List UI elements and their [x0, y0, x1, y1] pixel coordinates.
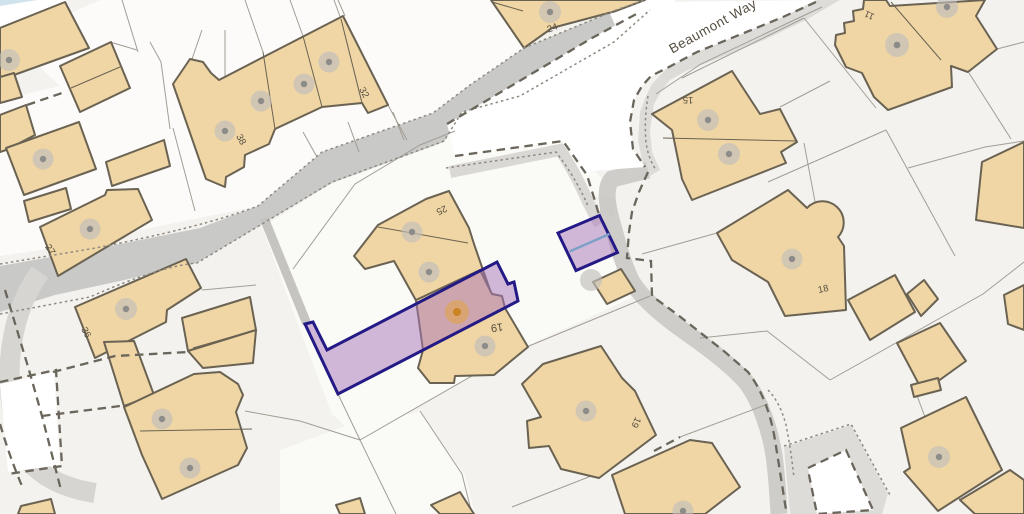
svg-text:18: 18 [817, 283, 830, 296]
svg-text:19: 19 [490, 320, 504, 334]
svg-text:15: 15 [683, 94, 694, 106]
